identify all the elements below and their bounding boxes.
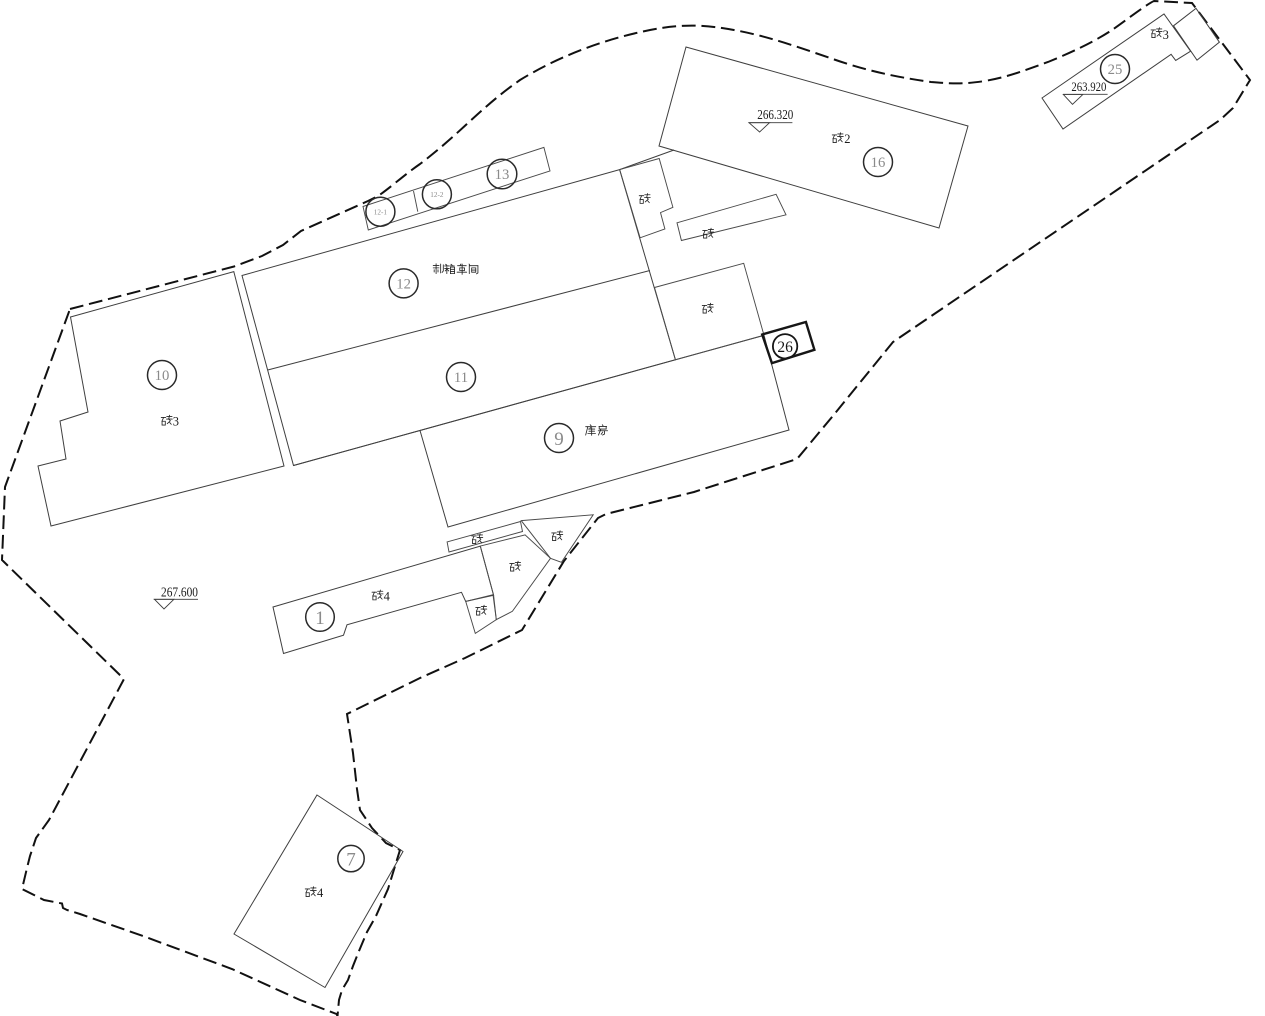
svg-text:3: 3 [1163,28,1169,42]
svg-text:266.320: 266.320 [757,107,793,122]
svg-text:12-1: 12-1 [374,208,388,216]
svg-text:263.920: 263.920 [1071,79,1106,94]
svg-text:25: 25 [1108,62,1123,78]
svg-text:26: 26 [777,339,793,356]
svg-text:9: 9 [554,429,564,450]
svg-text:12-2: 12-2 [430,191,444,199]
svg-text:7: 7 [346,849,356,870]
svg-text:12: 12 [396,277,411,293]
svg-text:4: 4 [317,886,324,900]
svg-text:16: 16 [871,155,886,171]
svg-text:10: 10 [155,368,170,384]
svg-text:13: 13 [495,167,510,183]
svg-text:2: 2 [844,132,850,146]
svg-text:1: 1 [315,608,325,629]
svg-text:3: 3 [173,415,179,429]
svg-text:4: 4 [384,589,391,603]
svg-text:11: 11 [454,370,468,386]
svg-text:267.600: 267.600 [161,585,198,600]
